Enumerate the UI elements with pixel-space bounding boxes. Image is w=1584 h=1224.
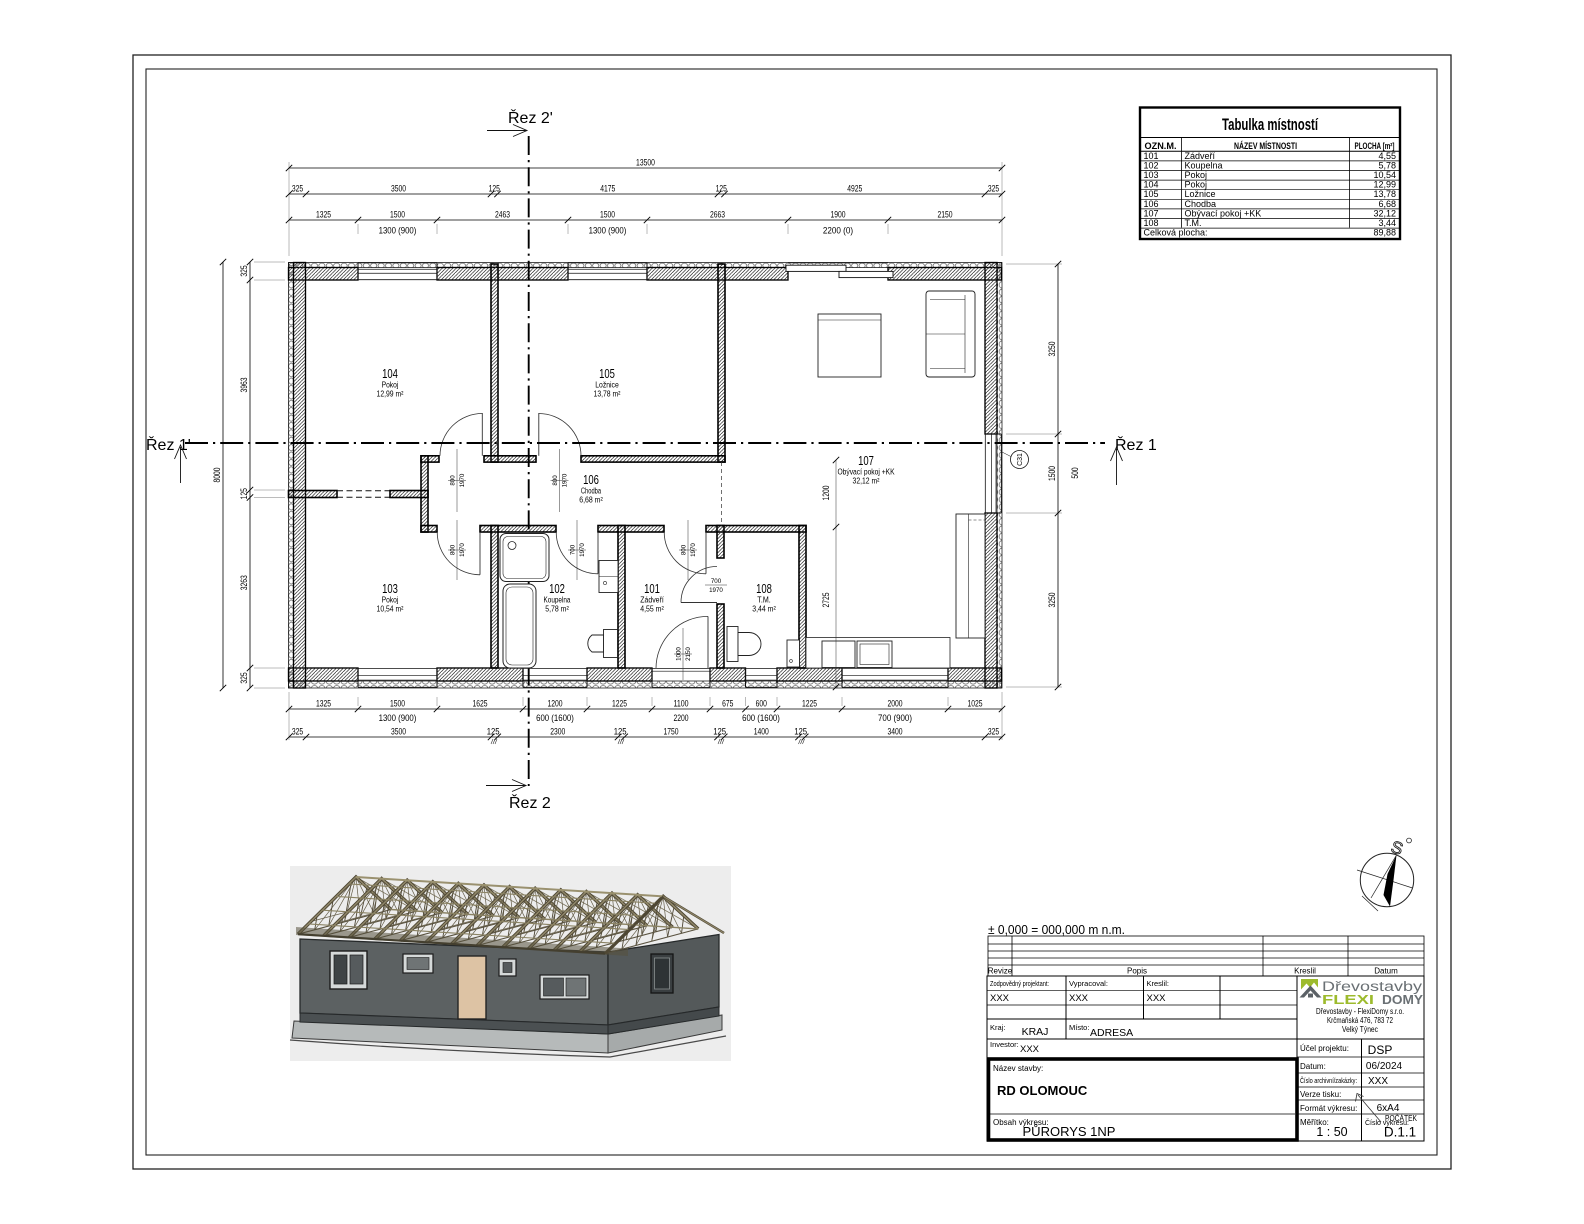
svg-text:1000: 1000 — [676, 647, 683, 661]
svg-text:2300: 2300 — [550, 727, 565, 737]
svg-text:125: 125 — [489, 184, 500, 194]
svg-text:125: 125 — [716, 184, 727, 194]
svg-text:Velký Týnec: Velký Týnec — [1342, 1025, 1378, 1034]
svg-text:1900: 1900 — [830, 210, 845, 220]
svg-text:Dřevostavby - FlexiDomy s.r.o.: Dřevostavby - FlexiDomy s.r.o. — [1316, 1007, 1404, 1016]
svg-text:4,55 m²: 4,55 m² — [640, 605, 664, 614]
svg-text:Řez 2: Řez 2 — [509, 793, 551, 812]
svg-text:XXX: XXX — [1147, 993, 1167, 1004]
svg-text:2463: 2463 — [495, 210, 510, 220]
svg-text:102: 102 — [549, 582, 565, 596]
svg-text:1970: 1970 — [562, 473, 569, 487]
svg-text:800: 800 — [552, 475, 559, 486]
svg-text:Ložnice: Ložnice — [1185, 189, 1216, 199]
svg-text:13500: 13500 — [636, 158, 655, 168]
svg-text:325: 325 — [988, 184, 999, 194]
svg-text:06/2024: 06/2024 — [1366, 1061, 1403, 1072]
svg-text:107: 107 — [858, 454, 874, 468]
svg-text:Pokoj: Pokoj — [1185, 170, 1208, 180]
svg-text:3250: 3250 — [1047, 341, 1057, 356]
svg-text:PŮRORYS 1NP: PŮRORYS 1NP — [1023, 1124, 1116, 1139]
svg-text:Datum:: Datum: — [1300, 1062, 1326, 1071]
svg-text:1500: 1500 — [600, 210, 615, 220]
svg-text:800: 800 — [450, 475, 457, 486]
svg-text:12,99: 12,99 — [1373, 180, 1396, 190]
svg-text:1500: 1500 — [390, 210, 405, 220]
svg-text:1970: 1970 — [459, 543, 466, 557]
svg-text:125: 125 — [239, 488, 249, 499]
svg-text:XXX: XXX — [1069, 993, 1089, 1004]
svg-text:KRAJ: KRAJ — [1022, 1026, 1049, 1038]
svg-text:125.: 125. — [713, 727, 728, 737]
svg-text:5,78: 5,78 — [1378, 160, 1396, 170]
svg-text:1200: 1200 — [547, 699, 562, 709]
svg-text:1970: 1970 — [579, 543, 586, 557]
svg-text:2725: 2725 — [821, 592, 831, 607]
svg-text:Ložnice: Ložnice — [595, 381, 619, 390]
svg-text:103: 103 — [1144, 170, 1159, 180]
svg-text:FLEXI: FLEXI — [1322, 992, 1374, 1007]
svg-text:325: 325 — [988, 727, 999, 737]
svg-text:Verze tisku:: Verze tisku: — [1300, 1090, 1341, 1099]
svg-text:2200 (0): 2200 (0) — [823, 226, 853, 236]
svg-text:3400: 3400 — [887, 727, 902, 737]
svg-text:5,78 m²: 5,78 m² — [545, 605, 569, 614]
svg-text:1300 (900): 1300 (900) — [379, 713, 417, 723]
svg-text:125.: 125. — [487, 727, 502, 737]
svg-text:103: 103 — [382, 582, 398, 596]
svg-text:3250: 3250 — [1047, 592, 1057, 607]
svg-text:XXX: XXX — [1368, 1076, 1388, 1087]
svg-text:4925: 4925 — [847, 184, 862, 194]
svg-text:Obývací pokoj +KK: Obývací pokoj +KK — [1185, 208, 1262, 218]
svg-text:XXX: XXX — [990, 993, 1010, 1004]
svg-text:Název stavby:: Název stavby: — [993, 1064, 1043, 1073]
svg-text:Koupelna: Koupelna — [1185, 160, 1223, 170]
svg-text:325: 325 — [239, 672, 249, 683]
svg-text:Zodpovědný projektant:: Zodpovědný projektant: — [990, 979, 1049, 988]
svg-text:Řez 1': Řez 1' — [146, 435, 191, 454]
svg-text:108: 108 — [1144, 218, 1159, 228]
svg-text:104: 104 — [382, 367, 398, 381]
svg-text:3963: 3963 — [239, 377, 249, 392]
svg-text:1200: 1200 — [821, 485, 831, 500]
svg-text:1750: 1750 — [663, 727, 678, 737]
svg-text:Zádveří: Zádveří — [640, 596, 664, 605]
svg-text:4,55: 4,55 — [1378, 151, 1396, 161]
svg-text:10,54 m²: 10,54 m² — [377, 605, 404, 614]
svg-text:PLOCHA [m²]: PLOCHA [m²] — [1355, 141, 1395, 151]
svg-text:1 : 50: 1 : 50 — [1316, 1125, 1347, 1139]
svg-text:125.: 125. — [614, 727, 629, 737]
svg-text:105: 105 — [599, 367, 615, 381]
svg-text:105: 105 — [1144, 189, 1159, 199]
svg-text:Investor:: Investor: — [990, 1040, 1019, 1049]
svg-text:POČÁTEK: POČÁTEK — [1385, 1113, 1417, 1123]
svg-text:106: 106 — [583, 473, 599, 487]
svg-text:101: 101 — [644, 582, 660, 596]
svg-text:6,68: 6,68 — [1378, 199, 1396, 209]
svg-text:1970: 1970 — [709, 587, 723, 594]
svg-text:1325: 1325 — [316, 699, 331, 709]
svg-text:ADRESA: ADRESA — [1090, 1027, 1133, 1039]
svg-text:XXX: XXX — [1020, 1044, 1040, 1055]
svg-text:Formát výkresu:: Formát výkresu: — [1300, 1104, 1357, 1113]
svg-text:13,78: 13,78 — [1373, 189, 1396, 199]
svg-text:± 0,000 = 000,000 m n.m.: ± 0,000 = 000,000 m n.m. — [988, 923, 1125, 937]
svg-text:1500: 1500 — [1047, 466, 1057, 481]
svg-text:3500: 3500 — [391, 184, 406, 194]
svg-text:13,78 m²: 13,78 m² — [594, 390, 621, 399]
svg-text:3,44 m²: 3,44 m² — [752, 605, 776, 614]
svg-text:Chodba: Chodba — [1185, 199, 1217, 209]
svg-text:Koupelna: Koupelna — [544, 596, 571, 605]
svg-text:104: 104 — [1144, 180, 1159, 190]
svg-text:2150: 2150 — [937, 210, 952, 220]
svg-text:2000: 2000 — [887, 699, 902, 709]
svg-text:675: 675 — [722, 699, 733, 709]
svg-text:6,68 m²: 6,68 m² — [579, 496, 603, 505]
svg-text:3263: 3263 — [239, 575, 249, 590]
svg-text:1970: 1970 — [459, 473, 466, 487]
svg-text:325: 325 — [239, 265, 249, 276]
svg-text:32,12: 32,12 — [1373, 208, 1396, 218]
svg-text:325: 325 — [292, 727, 303, 737]
svg-text:600: 600 — [756, 699, 767, 709]
svg-text:1100: 1100 — [673, 699, 688, 709]
svg-text:Kreslil:: Kreslil: — [1147, 979, 1170, 988]
svg-text:DOMY: DOMY — [1382, 992, 1423, 1007]
svg-text:1300 (900): 1300 (900) — [379, 226, 417, 236]
svg-text:800: 800 — [681, 544, 688, 555]
svg-text:32,12 m²: 32,12 m² — [853, 477, 880, 486]
svg-text:Pokoj: Pokoj — [1185, 180, 1208, 190]
svg-text:Popis: Popis — [1127, 967, 1147, 976]
svg-text:T.M.: T.M. — [1185, 218, 1202, 228]
svg-text:108: 108 — [756, 582, 772, 596]
svg-text:107: 107 — [1144, 208, 1159, 218]
svg-text:Číslo archivní/zakázky:: Číslo archivní/zakázky: — [1300, 1076, 1357, 1085]
svg-text:Vypracoval:: Vypracoval: — [1069, 979, 1108, 988]
svg-text:Celková plocha:: Celková plocha: — [1144, 228, 1208, 238]
svg-text:Pokoj: Pokoj — [382, 596, 399, 605]
svg-text:1400: 1400 — [754, 727, 769, 737]
svg-text:OZN.M.: OZN.M. — [1145, 141, 1177, 151]
svg-text:102: 102 — [1144, 160, 1159, 170]
svg-text:Kreslil: Kreslil — [1294, 967, 1316, 976]
svg-text:Řez 2': Řez 2' — [508, 108, 553, 127]
svg-text:600 (1600): 600 (1600) — [742, 713, 780, 723]
svg-text:2200: 2200 — [673, 713, 688, 723]
svg-text:325: 325 — [292, 184, 303, 194]
svg-text:1625: 1625 — [472, 699, 487, 709]
svg-text:101: 101 — [1144, 151, 1159, 161]
svg-text:3500: 3500 — [391, 727, 406, 737]
svg-text:106: 106 — [1144, 199, 1159, 209]
svg-text:2150: 2150 — [685, 647, 692, 661]
svg-text:8000: 8000 — [212, 467, 222, 482]
svg-text:NÁZEV MÍSTNOSTI: NÁZEV MÍSTNOSTI — [1234, 141, 1297, 151]
svg-text:1025: 1025 — [967, 699, 982, 709]
svg-text:700: 700 — [570, 544, 577, 555]
svg-text:Řez 1: Řez 1 — [1115, 435, 1157, 454]
svg-text:12,99 m²: 12,99 m² — [377, 390, 404, 399]
svg-text:RD OLOMOUC: RD OLOMOUC — [997, 1083, 1088, 1098]
svg-text:500: 500 — [1070, 467, 1080, 478]
svg-text:Chodba: Chodba — [581, 487, 602, 496]
svg-text:T.M.: T.M. — [757, 596, 770, 605]
svg-text:1970: 1970 — [690, 543, 697, 557]
svg-text:C31: C31 — [1017, 453, 1024, 466]
svg-text:Revize: Revize — [988, 967, 1013, 976]
svg-text:600 (1600): 600 (1600) — [536, 713, 574, 723]
svg-text:Zádveří: Zádveří — [1185, 151, 1216, 161]
svg-text:Datum: Datum — [1374, 967, 1398, 976]
svg-text:Účel projektu:: Účel projektu: — [1300, 1044, 1349, 1053]
svg-text:700: 700 — [711, 578, 722, 585]
svg-text:700 (900): 700 (900) — [878, 713, 912, 723]
svg-text:3,44: 3,44 — [1378, 218, 1396, 228]
svg-text:Kraj:: Kraj: — [990, 1023, 1005, 1032]
svg-text:1500: 1500 — [390, 699, 405, 709]
svg-text:Pokoj: Pokoj — [382, 381, 399, 390]
svg-text:DSP: DSP — [1368, 1043, 1393, 1057]
svg-text:125.: 125. — [794, 727, 809, 737]
svg-text:1300 (900): 1300 (900) — [589, 226, 627, 236]
svg-text:Místo:: Místo: — [1069, 1023, 1089, 1032]
svg-text:10,54: 10,54 — [1373, 170, 1396, 180]
svg-text:2663: 2663 — [710, 210, 725, 220]
svg-text:1325: 1325 — [316, 210, 331, 220]
svg-text:4175: 4175 — [600, 184, 615, 194]
svg-text:89,88: 89,88 — [1373, 228, 1396, 238]
svg-text:1225: 1225 — [612, 699, 627, 709]
svg-text:Krčmaňská 476, 783 72: Krčmaňská 476, 783 72 — [1327, 1016, 1393, 1025]
svg-text:Tabulka místností: Tabulka místností — [1222, 116, 1319, 134]
svg-text:Obývací pokoj +KK: Obývací pokoj +KK — [837, 468, 895, 477]
svg-text:1225: 1225 — [802, 699, 817, 709]
svg-text:800: 800 — [450, 544, 457, 555]
svg-text:D.1.1: D.1.1 — [1384, 1125, 1416, 1140]
